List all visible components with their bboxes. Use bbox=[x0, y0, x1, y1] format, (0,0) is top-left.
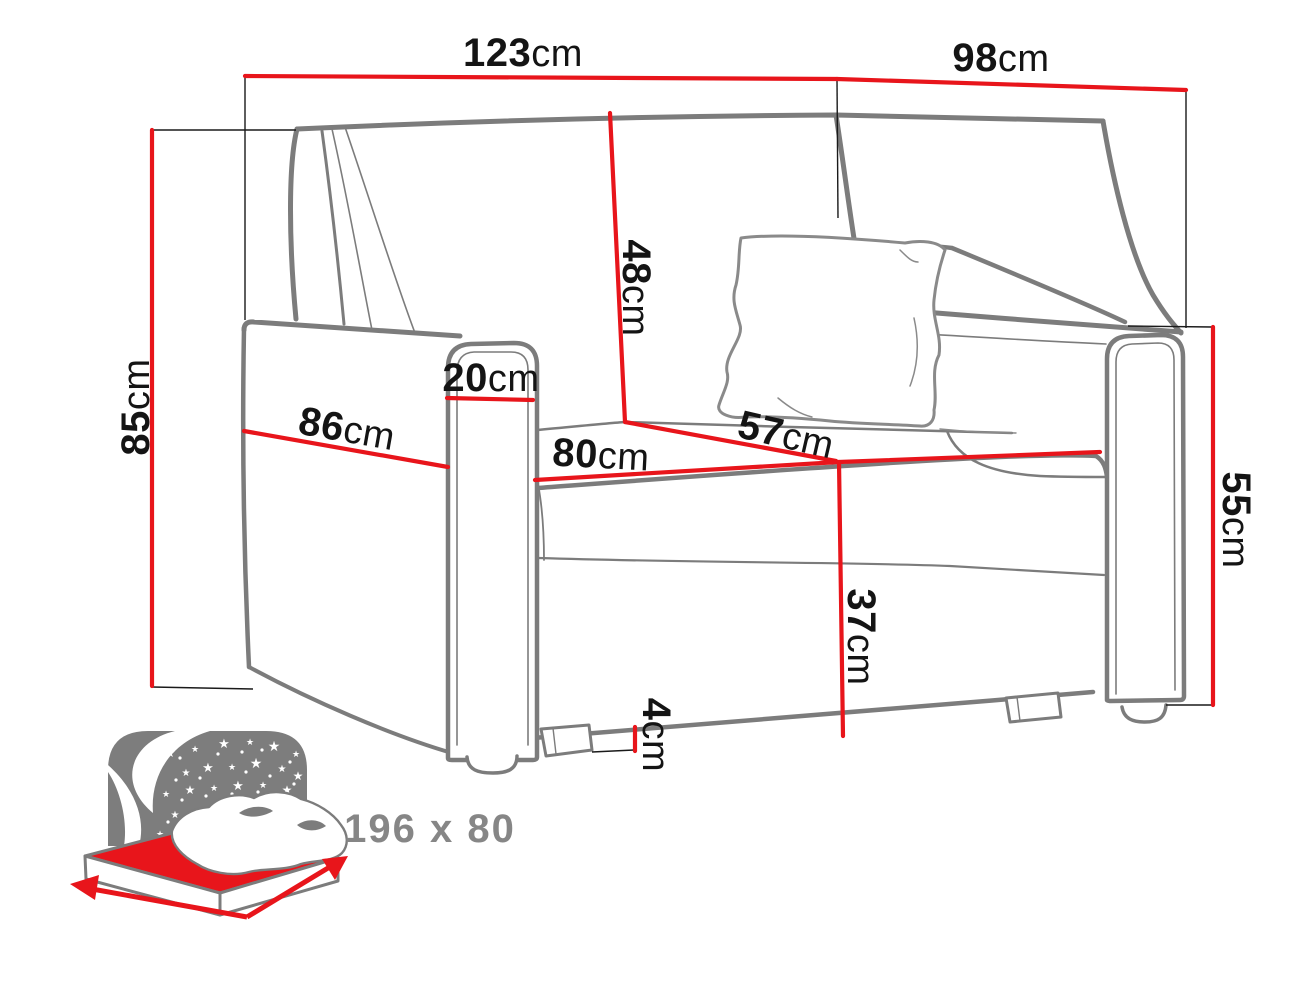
front-foot-right bbox=[1006, 693, 1061, 722]
svg-text:★: ★ bbox=[228, 763, 236, 773]
pillow bbox=[719, 236, 1016, 433]
svg-text:★: ★ bbox=[278, 764, 287, 775]
backrest-right-edge bbox=[1103, 121, 1181, 333]
dim-label-armrest-height: 55cm bbox=[1216, 471, 1256, 568]
ext-width-depth-junction bbox=[837, 79, 838, 218]
dim-unit: cm bbox=[614, 285, 656, 337]
dim-unit: cm bbox=[116, 358, 158, 410]
dim-unit: cm bbox=[634, 721, 676, 773]
svg-text:★: ★ bbox=[232, 779, 244, 794]
right-armrest-panel bbox=[1107, 335, 1184, 701]
dim-value: 85 bbox=[114, 410, 158, 456]
dim-value: 98 bbox=[952, 36, 998, 80]
dim-label-overall-height: 85cm bbox=[116, 358, 156, 455]
backrest-left-edge bbox=[291, 129, 298, 319]
dim-unit: cm bbox=[597, 435, 651, 480]
dim-unit: cm bbox=[488, 358, 540, 400]
svg-text:★: ★ bbox=[246, 738, 254, 748]
dim-label-seat-width: 80cm bbox=[551, 432, 650, 477]
svg-text:★: ★ bbox=[268, 739, 281, 755]
svg-text:★: ★ bbox=[162, 790, 170, 800]
base-seam-line bbox=[538, 558, 1104, 575]
dim-unit: cm bbox=[998, 38, 1050, 80]
sleeping-area-size-label: 196 x 80 bbox=[344, 809, 516, 849]
dim-unit: cm bbox=[531, 33, 583, 75]
sofa-dimension-diagram: ★★ ★★ ★★ ★★ ★★ ★★ ★★ ★★ ★★ ★★ ★★ ★★ ★★ ★… bbox=[0, 0, 1314, 985]
left-side-left-edge bbox=[243, 328, 249, 667]
svg-text:★: ★ bbox=[250, 756, 263, 772]
dim-line-overall-depth bbox=[837, 79, 1186, 90]
bed-sleeping-icon: ★★ ★★ ★★ ★★ ★★ ★★ ★★ ★★ ★★ ★★ ★★ ★★ ★★ ★… bbox=[70, 731, 348, 917]
left-armrest-panel bbox=[448, 343, 537, 760]
dim-line-overall-width bbox=[245, 76, 837, 79]
dim-value: 4 bbox=[634, 698, 678, 721]
svg-text:★: ★ bbox=[165, 746, 176, 760]
dim-label-seat-height: 37cm bbox=[841, 588, 881, 685]
dim-value: 48 bbox=[614, 239, 658, 285]
dim-value: 123 bbox=[463, 31, 531, 75]
svg-text:★: ★ bbox=[210, 784, 218, 794]
svg-text:★: ★ bbox=[259, 781, 267, 791]
dim-unit: cm bbox=[839, 634, 881, 686]
svg-text:★: ★ bbox=[218, 737, 230, 752]
dim-unit: cm bbox=[340, 409, 398, 459]
left-armrest-foot bbox=[467, 756, 517, 773]
dim-label-armrest-width: 20cm bbox=[442, 358, 539, 398]
dim-label-overall-depth: 98cm bbox=[952, 38, 1049, 78]
dim-value: 55 bbox=[1214, 471, 1258, 517]
pillow-outline bbox=[719, 236, 945, 426]
dim-value: 37 bbox=[839, 588, 883, 634]
svg-text:★: ★ bbox=[293, 769, 304, 783]
right-armrest-foot bbox=[1122, 705, 1166, 722]
ext-overall-height-bottom bbox=[152, 687, 253, 689]
dim-label-overall-width: 123cm bbox=[463, 33, 583, 73]
left-side-top-edge bbox=[244, 322, 460, 336]
dim-unit: cm bbox=[1214, 517, 1256, 569]
ext-foot-height-bottom bbox=[592, 750, 634, 752]
svg-text:★: ★ bbox=[182, 768, 191, 779]
front-foot-left bbox=[541, 725, 592, 756]
backrest-crease-thin-2 bbox=[345, 127, 415, 333]
dim-label-backrest-height: 48cm bbox=[616, 239, 656, 336]
svg-text:★: ★ bbox=[191, 745, 199, 755]
right-armrest-top-back-edge bbox=[924, 312, 1181, 332]
dim-value: 86 bbox=[295, 399, 347, 450]
dim-value: 20 bbox=[442, 356, 488, 400]
svg-text:★: ★ bbox=[292, 750, 300, 760]
backrest-crease-thick bbox=[322, 131, 344, 324]
backrest-crease-thin-1 bbox=[332, 129, 372, 330]
backrest-top-edge bbox=[297, 115, 1103, 129]
backrest-corner-edge bbox=[836, 115, 856, 251]
dim-value: 80 bbox=[551, 430, 599, 476]
svg-text:★: ★ bbox=[202, 761, 214, 776]
diagram-canvas: ★★ ★★ ★★ ★★ ★★ ★★ ★★ ★★ ★★ ★★ ★★ ★★ ★★ ★… bbox=[0, 0, 1314, 985]
ext-armrest-height-top bbox=[1128, 326, 1212, 327]
svg-text:★: ★ bbox=[185, 783, 196, 797]
dim-label-foot-height: 4cm bbox=[636, 698, 676, 772]
